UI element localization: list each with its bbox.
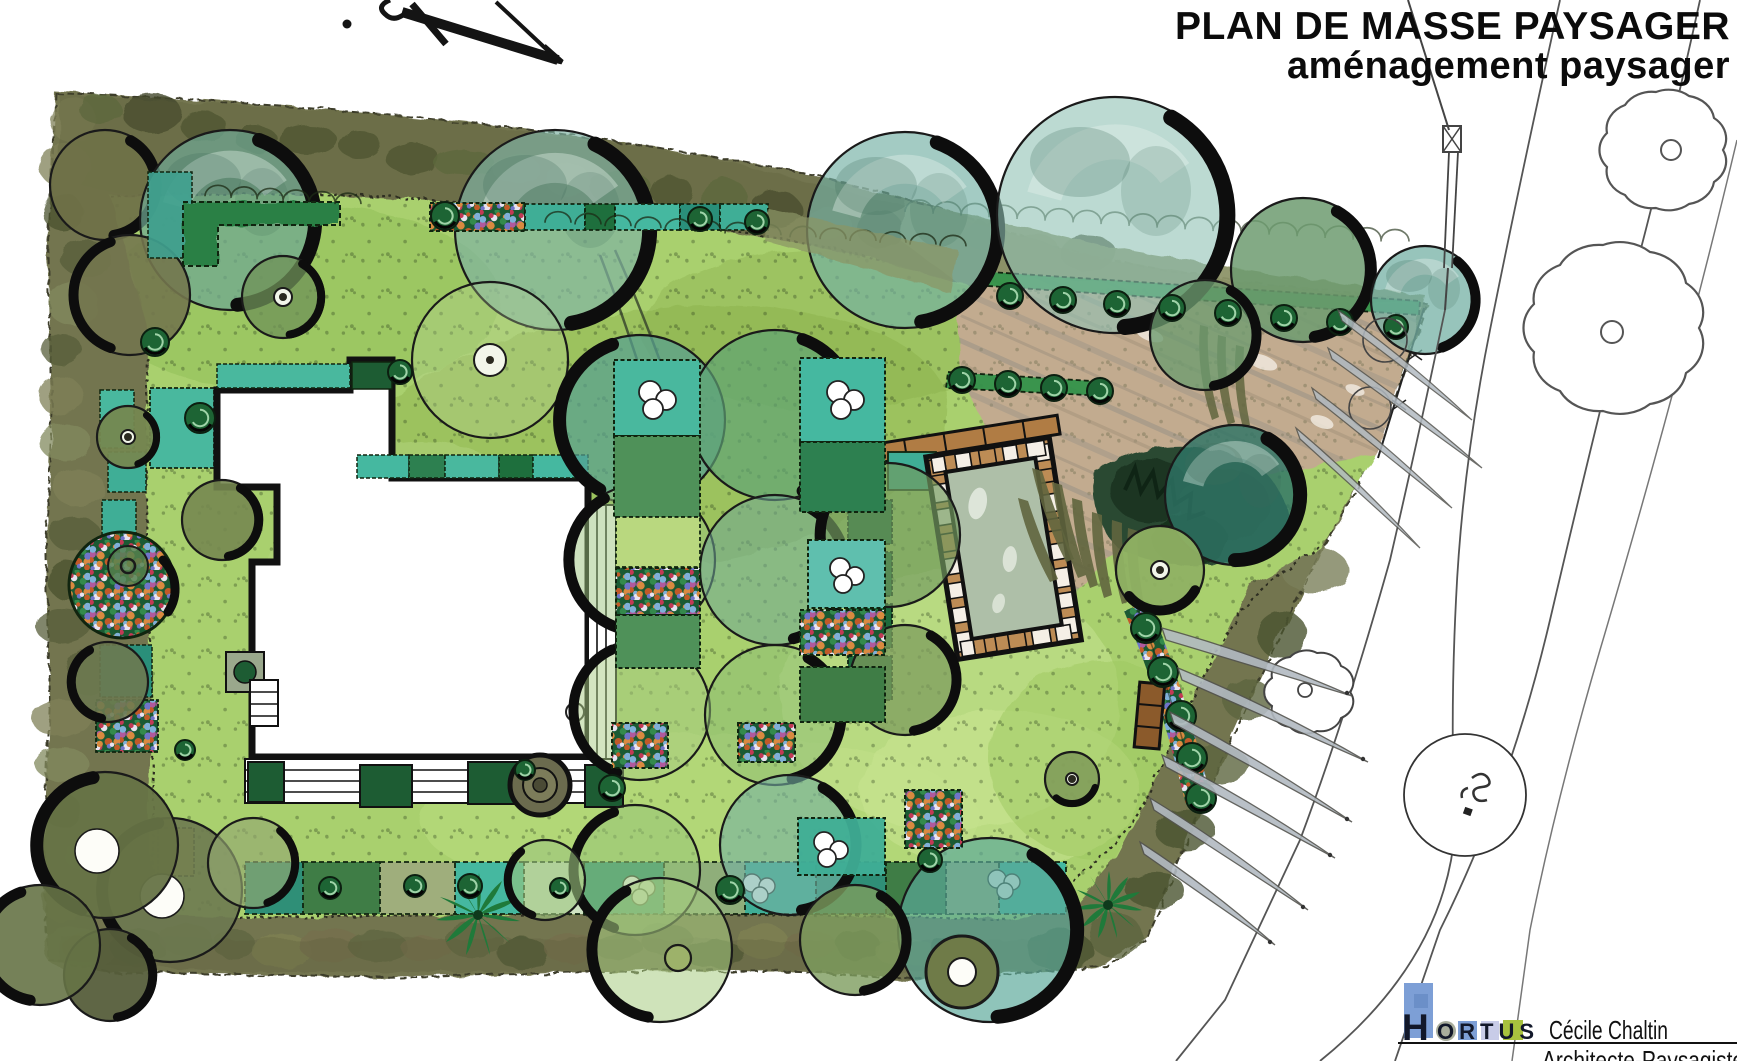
svg-text:Cécile Chaltin: Cécile Chaltin	[1549, 1015, 1668, 1045]
svg-text:PLAN DE MASSE PAYSAGER: PLAN DE MASSE PAYSAGER	[1175, 5, 1730, 48]
svg-text:H: H	[1402, 1007, 1429, 1048]
svg-text:Architecte-Paysagiste: Architecte-Paysagiste	[1542, 1045, 1737, 1061]
svg-text:aménagement paysager: aménagement paysager	[1287, 45, 1730, 87]
svg-text:ORTUS: ORTUS	[1437, 1019, 1539, 1044]
